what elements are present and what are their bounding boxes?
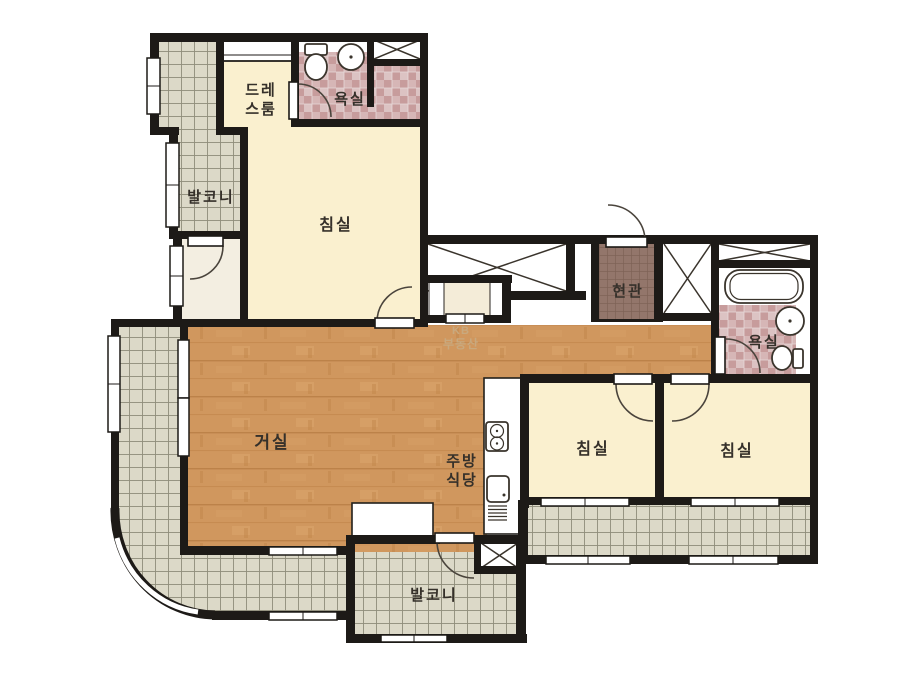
window bbox=[381, 635, 447, 642]
bathroom-right-label: 욕실 bbox=[748, 334, 780, 351]
entrance-door bbox=[606, 205, 647, 247]
balcony-top-left-lower-floor bbox=[174, 130, 244, 237]
balcony-top-left-upper-floor bbox=[153, 38, 221, 133]
window bbox=[691, 498, 779, 506]
bath-top-closet-icon bbox=[719, 244, 810, 261]
window bbox=[689, 556, 778, 564]
dress-room-label-line2: 스룸 bbox=[245, 101, 277, 118]
kitchen-sink-icon bbox=[487, 476, 509, 502]
window bbox=[178, 340, 189, 456]
living-room-label: 거실 bbox=[254, 433, 289, 452]
bathtub-icon bbox=[725, 270, 803, 303]
window bbox=[170, 246, 183, 306]
window bbox=[546, 556, 630, 564]
bedroom-bottom-right-label: 침실 bbox=[720, 441, 753, 460]
window bbox=[541, 498, 629, 506]
kb-watermark-line2: 부동산 bbox=[443, 336, 479, 351]
pantry-cabinet bbox=[429, 282, 505, 318]
bedroom-bottom-left-label: 침실 bbox=[576, 439, 609, 458]
wash-basin-icon bbox=[338, 44, 364, 70]
entrance-floor bbox=[597, 242, 658, 322]
stove-icon bbox=[486, 422, 508, 451]
duct-shaft-icon bbox=[374, 40, 420, 59]
bedroom-top-left-label: 침실 bbox=[319, 215, 352, 234]
balcony-bottom-right-floor bbox=[525, 503, 814, 561]
kitchen-label-line2: 식당 bbox=[446, 471, 478, 489]
floor-plan-canvas: 발코니 드레 스룸 욕실 침실 현관 욕실 거실 주방 식당 침실 침실 발코니… bbox=[0, 0, 923, 676]
kitchen-counter bbox=[484, 378, 522, 534]
entrance-label: 현관 bbox=[612, 283, 644, 300]
kitchen-duct-icon bbox=[481, 543, 518, 568]
entry-closet-icon bbox=[664, 244, 711, 313]
balcony-top-left-label: 발코니 bbox=[187, 189, 234, 206]
living-room-floor bbox=[188, 376, 487, 552]
bathroom-top-label: 욕실 bbox=[334, 91, 366, 108]
dress-room-label-line1: 드레 bbox=[245, 82, 277, 99]
window bbox=[269, 612, 337, 620]
window bbox=[108, 336, 120, 432]
balcony-bottom-label: 발코니 bbox=[410, 587, 457, 604]
pantry-sill bbox=[446, 314, 484, 323]
wash-basin-icon bbox=[776, 307, 804, 335]
utility-counter bbox=[352, 503, 433, 538]
toilet-icon bbox=[305, 44, 327, 80]
bedroom-bottom-right-floor bbox=[661, 379, 814, 503]
window bbox=[147, 58, 160, 114]
kb-watermark-line1: KB bbox=[452, 325, 470, 337]
floor-plan-drawing: 발코니 드레 스룸 욕실 침실 현관 욕실 거실 주방 식당 침실 침실 발코니… bbox=[0, 0, 923, 676]
kitchen-label-line1: 주방 bbox=[446, 452, 478, 470]
window bbox=[166, 143, 179, 227]
alcove-floor bbox=[178, 237, 244, 325]
dress-room-closet bbox=[220, 40, 293, 61]
window bbox=[269, 547, 337, 555]
